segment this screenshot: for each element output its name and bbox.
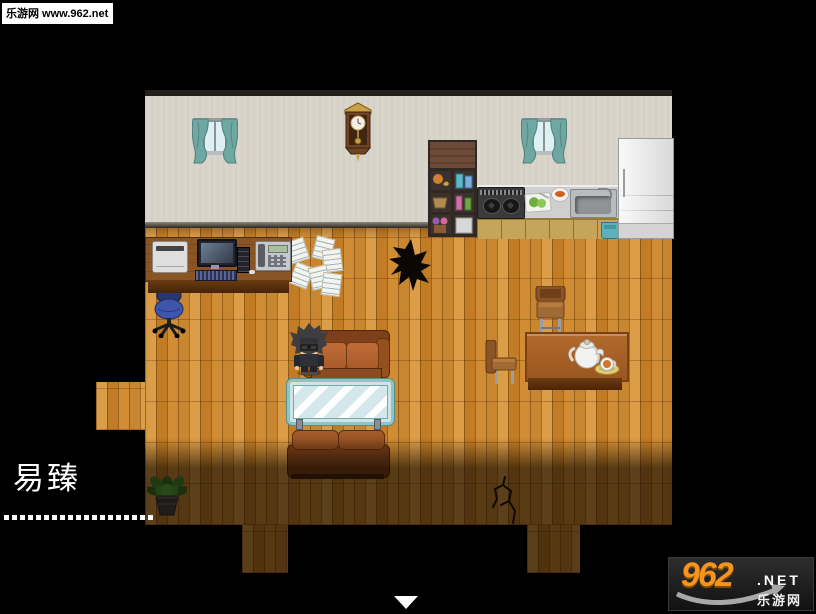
- desk-front: [148, 280, 289, 293]
- player-character: [289, 323, 329, 377]
- mouse: [249, 270, 255, 274]
- scattered-papers: [286, 237, 342, 299]
- floor-doorway-left: [242, 525, 288, 573]
- dialogue-speaker-name: 易臻: [13, 453, 81, 498]
- logo-site-name: 乐游网: [757, 590, 802, 609]
- glass-table: [287, 379, 388, 428]
- wall-clock: [343, 102, 373, 164]
- kitchen-counter: [477, 185, 618, 237]
- fax-phone: [255, 241, 291, 271]
- dining-chair-left: [483, 340, 518, 388]
- dining-chair-top: [533, 286, 568, 334]
- window-left: [192, 118, 238, 165]
- counter-cabinets: [477, 218, 618, 239]
- office-desk: [145, 237, 292, 293]
- gas-stove: [477, 187, 525, 219]
- dining-table: [525, 332, 625, 390]
- printer: [152, 241, 188, 273]
- logo-tld: .NET: [757, 572, 801, 588]
- cutting-board: [524, 192, 551, 213]
- refrigerator: [618, 138, 674, 239]
- dialogue-ellipsis-line: [4, 515, 156, 520]
- keyboard: [195, 270, 237, 281]
- pc-tower: [237, 247, 250, 273]
- sofa-lower: [287, 430, 388, 480]
- floor-notch-left: [96, 382, 145, 430]
- watermark-badge[interactable]: 乐游网 www.962.net: [2, 3, 113, 24]
- window-right: [521, 118, 567, 165]
- monitor-stand: [211, 265, 219, 269]
- office-chair: [150, 290, 188, 338]
- continue-arrow-icon[interactable]: [394, 596, 418, 609]
- potted-plant: [147, 470, 187, 517]
- room: [145, 90, 672, 525]
- floor-doorway-right: [527, 525, 580, 573]
- computer-monitor: [197, 239, 237, 267]
- teacup: [593, 354, 623, 376]
- kitchen-sink: [570, 189, 617, 218]
- wall-top-edge: [145, 90, 672, 96]
- floor-crack: [487, 475, 525, 525]
- site-logo[interactable]: 962 .NET 乐游网: [668, 557, 814, 611]
- bucket: [601, 222, 619, 239]
- page: { "watermark": { "badge_text": "乐游网 www.…: [0, 0, 816, 614]
- food-bowl: [551, 187, 569, 202]
- floor-hole: [385, 237, 435, 295]
- game-viewport[interactable]: 易臻: [0, 0, 816, 614]
- storage-shelf: [428, 140, 477, 237]
